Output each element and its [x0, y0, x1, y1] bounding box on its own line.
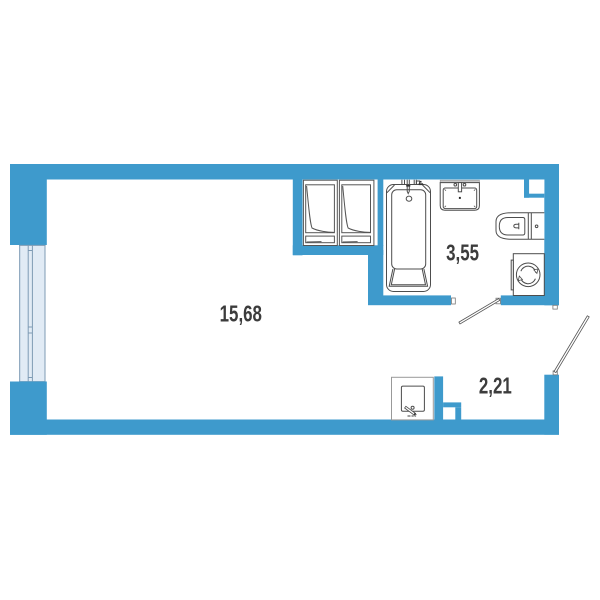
svg-text:15,68: 15,68: [220, 301, 262, 327]
svg-text:3,55: 3,55: [446, 240, 479, 266]
svg-text:2,21: 2,21: [479, 373, 512, 399]
